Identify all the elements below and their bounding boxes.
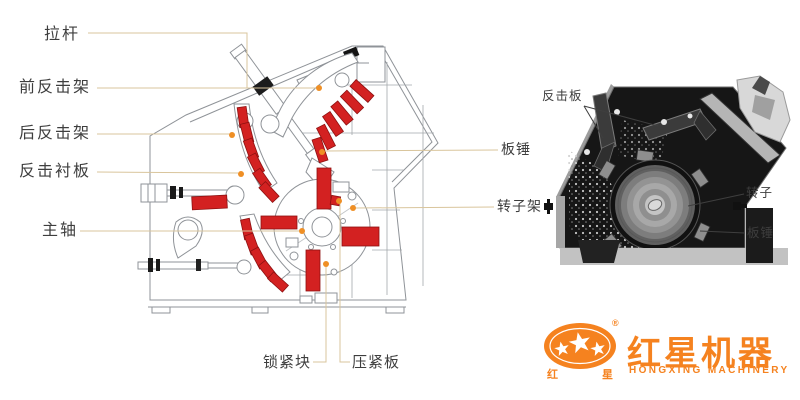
label-blow-bar-photo: 板锤	[747, 227, 774, 241]
label-pull-rod: 拉杆	[44, 26, 80, 44]
registered-mark: ®	[612, 318, 619, 328]
impact-crusher-diagram-page: 拉杆 前反击架 后反击架 反击衬板 主轴 板锤 转子架 锁紧块 压紧板 反击板 …	[0, 0, 800, 400]
label-main-shaft: 主轴	[42, 222, 78, 240]
label-rotor-photo: 转子	[746, 187, 773, 201]
logo-brand-en: HONGXING MACHINERY	[629, 365, 790, 376]
label-rear-impact-frame: 后反击架	[19, 125, 91, 143]
label-impact-plate-photo: 反击板	[542, 90, 583, 104]
label-impact-lining-plate: 反击衬板	[19, 163, 91, 181]
label-blow-bar-left: 板锤	[501, 143, 531, 158]
label-pressing-plate: 压紧板	[352, 355, 400, 372]
lining-plate-block	[192, 195, 228, 210]
logo-seal-left: 红	[547, 366, 558, 382]
housing-outline	[148, 46, 438, 313]
label-locking-block: 锁紧块	[263, 355, 311, 372]
crusher-cross-section-drawing	[138, 43, 438, 313]
label-front-impact-frame: 前反击架	[19, 79, 91, 97]
hongxing-logo-emblem	[544, 323, 616, 369]
label-rotor-frame: 转子架	[497, 200, 542, 215]
logo-seal-right: 星	[602, 366, 613, 382]
